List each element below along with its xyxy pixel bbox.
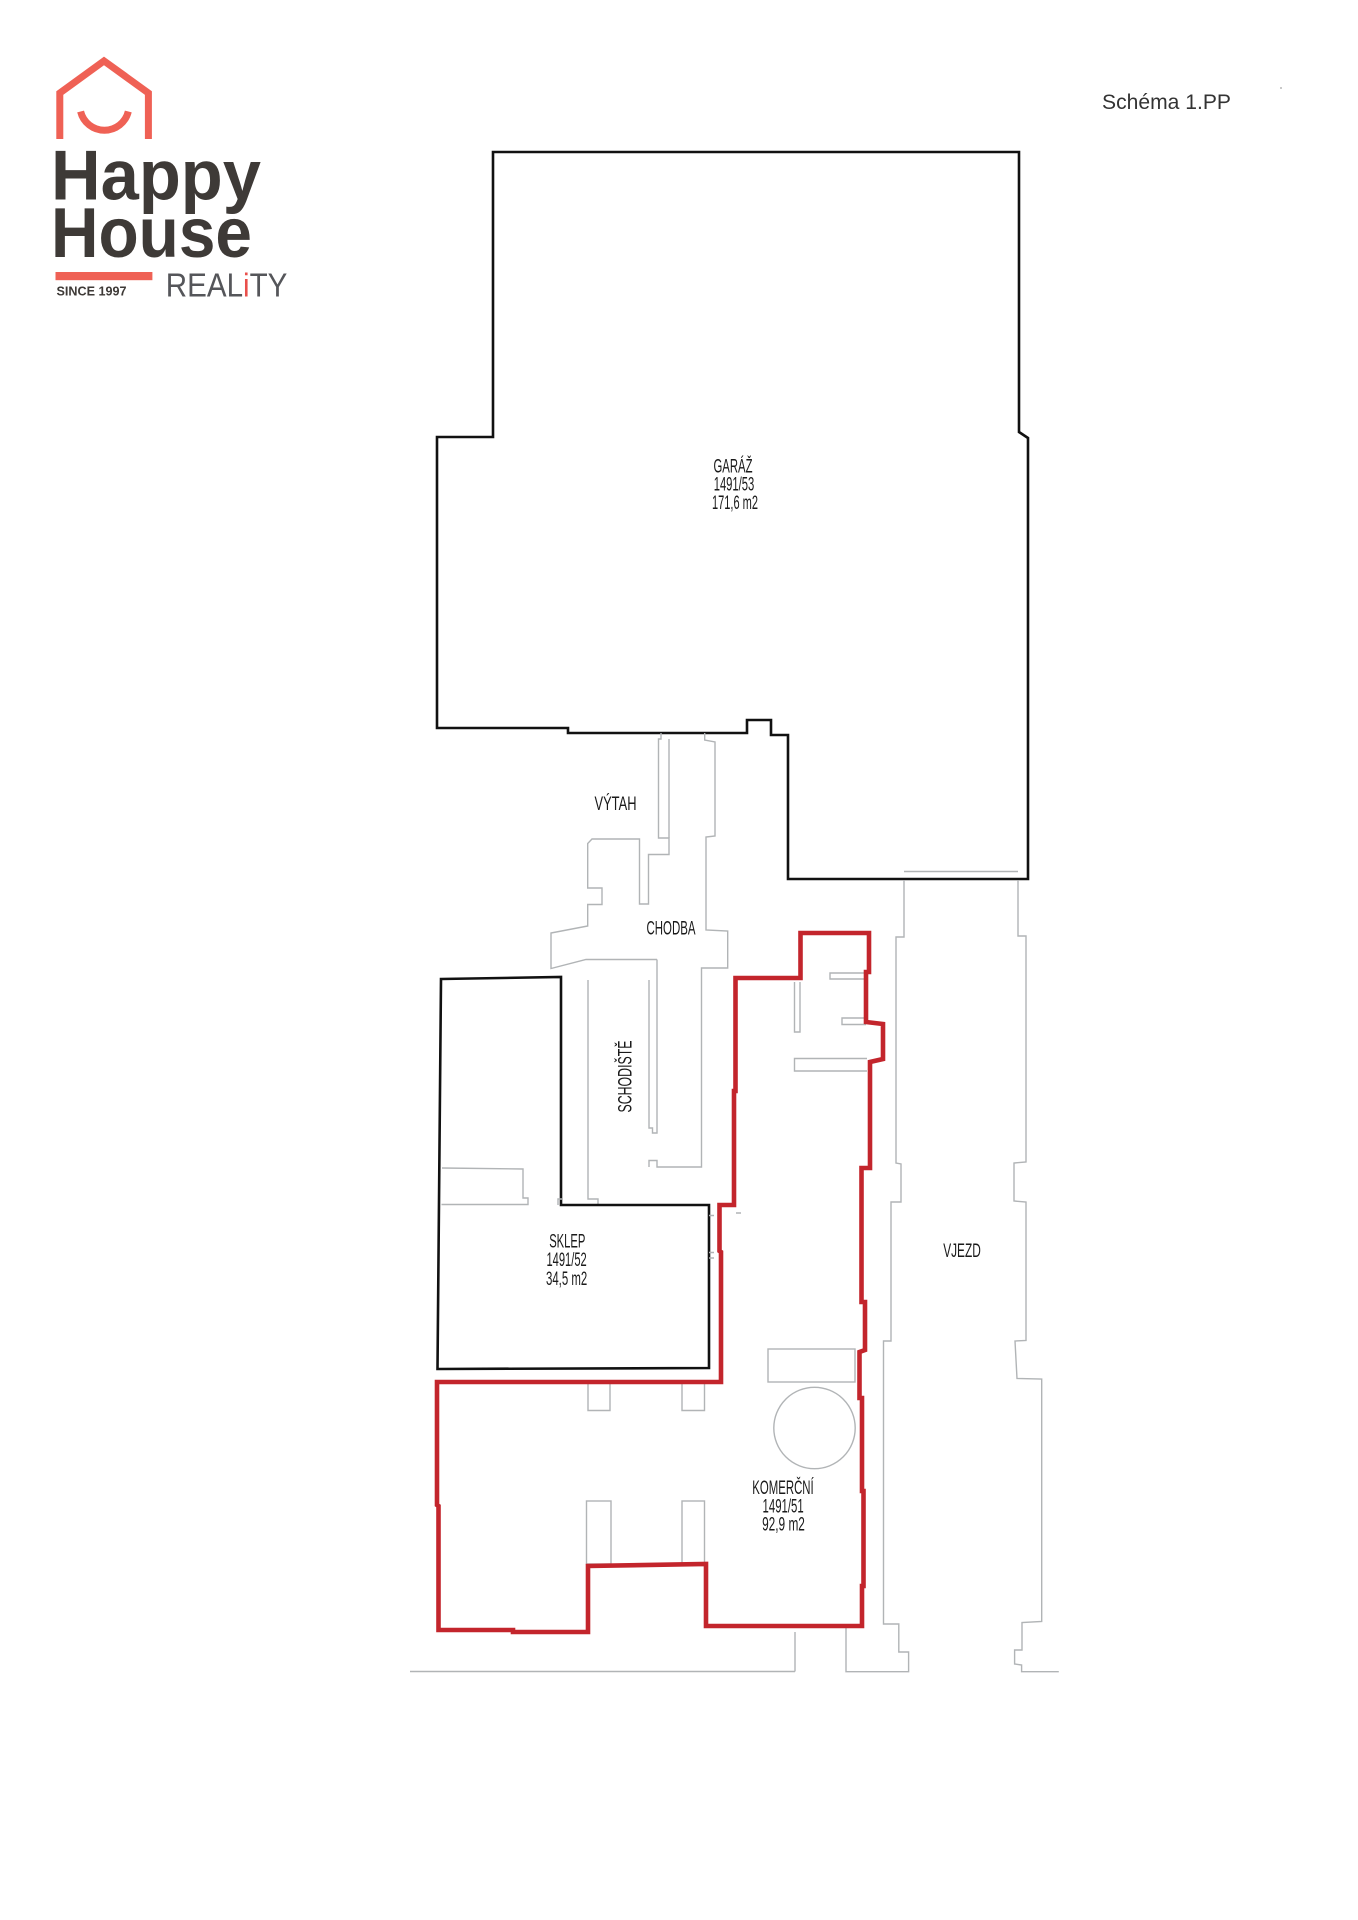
svg-text:Schéma 1.PP: Schéma 1.PP [1102, 91, 1231, 114]
svg-text:171,6 m2: 171,6 m2 [712, 493, 758, 514]
svg-text:VÝTAH: VÝTAH [595, 794, 637, 815]
svg-text:House: House [51, 193, 252, 272]
svg-text:34,5 m2: 34,5 m2 [546, 1269, 587, 1290]
svg-text:CHODBA: CHODBA [647, 919, 696, 940]
svg-text:VJEZD: VJEZD [943, 1241, 981, 1262]
svg-text:REALiTY: REALiTY [166, 267, 288, 304]
svg-text:SINCE 1997: SINCE 1997 [57, 284, 127, 299]
svg-text:SCHODIŠTĚ: SCHODIŠTĚ [615, 1041, 637, 1113]
svg-text:1491/52: 1491/52 [547, 1250, 587, 1271]
svg-text:92,9 m2: 92,9 m2 [762, 1515, 805, 1536]
